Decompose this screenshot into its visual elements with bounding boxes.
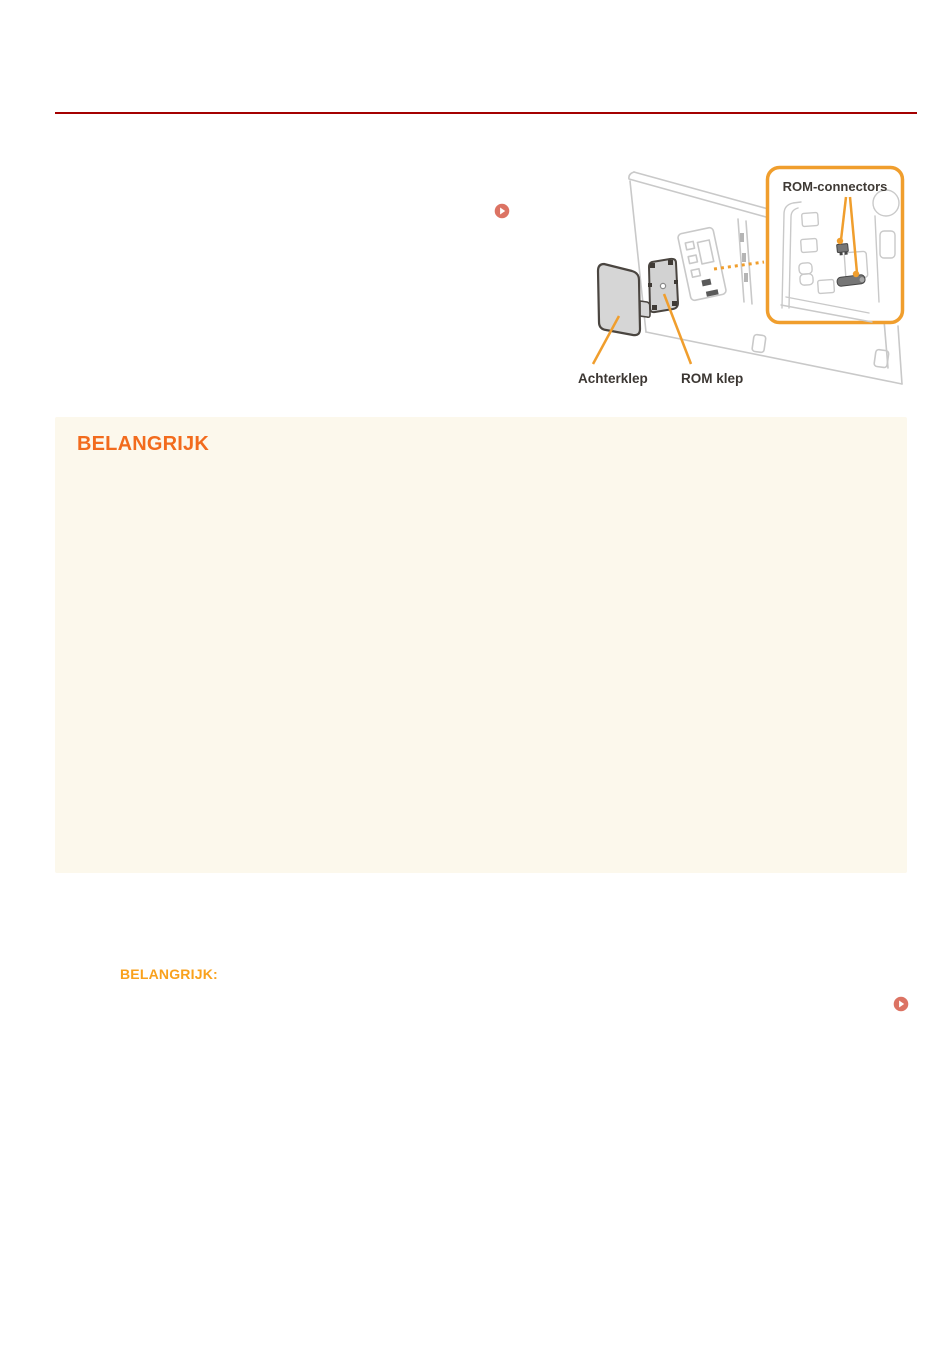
link-play-icon[interactable] xyxy=(893,996,909,1012)
manual-page: Achterklep ROM klep xyxy=(0,0,950,1369)
rom-connectors-callout: ROM-connectors xyxy=(768,168,903,323)
callout-label: ROM-connectors xyxy=(783,179,888,194)
rom-panel-recess xyxy=(677,227,726,301)
rom-cover-label: ROM klep xyxy=(681,371,743,386)
important-note-title: BELANGRIJK: xyxy=(120,966,218,982)
link-play-icon[interactable] xyxy=(494,203,510,219)
back-cover-label: Achterklep xyxy=(578,371,648,386)
printer-rear-figure: Achterklep ROM klep xyxy=(570,160,915,395)
section-divider xyxy=(55,112,917,114)
important-callout-box: BELANGRIJK xyxy=(55,417,907,873)
printer-rear-illustration: Achterklep ROM klep xyxy=(570,160,915,395)
rom-cover-plate xyxy=(648,259,678,312)
play-icon xyxy=(494,203,510,219)
important-box-title: BELANGRIJK xyxy=(77,433,885,455)
play-icon xyxy=(893,996,909,1012)
